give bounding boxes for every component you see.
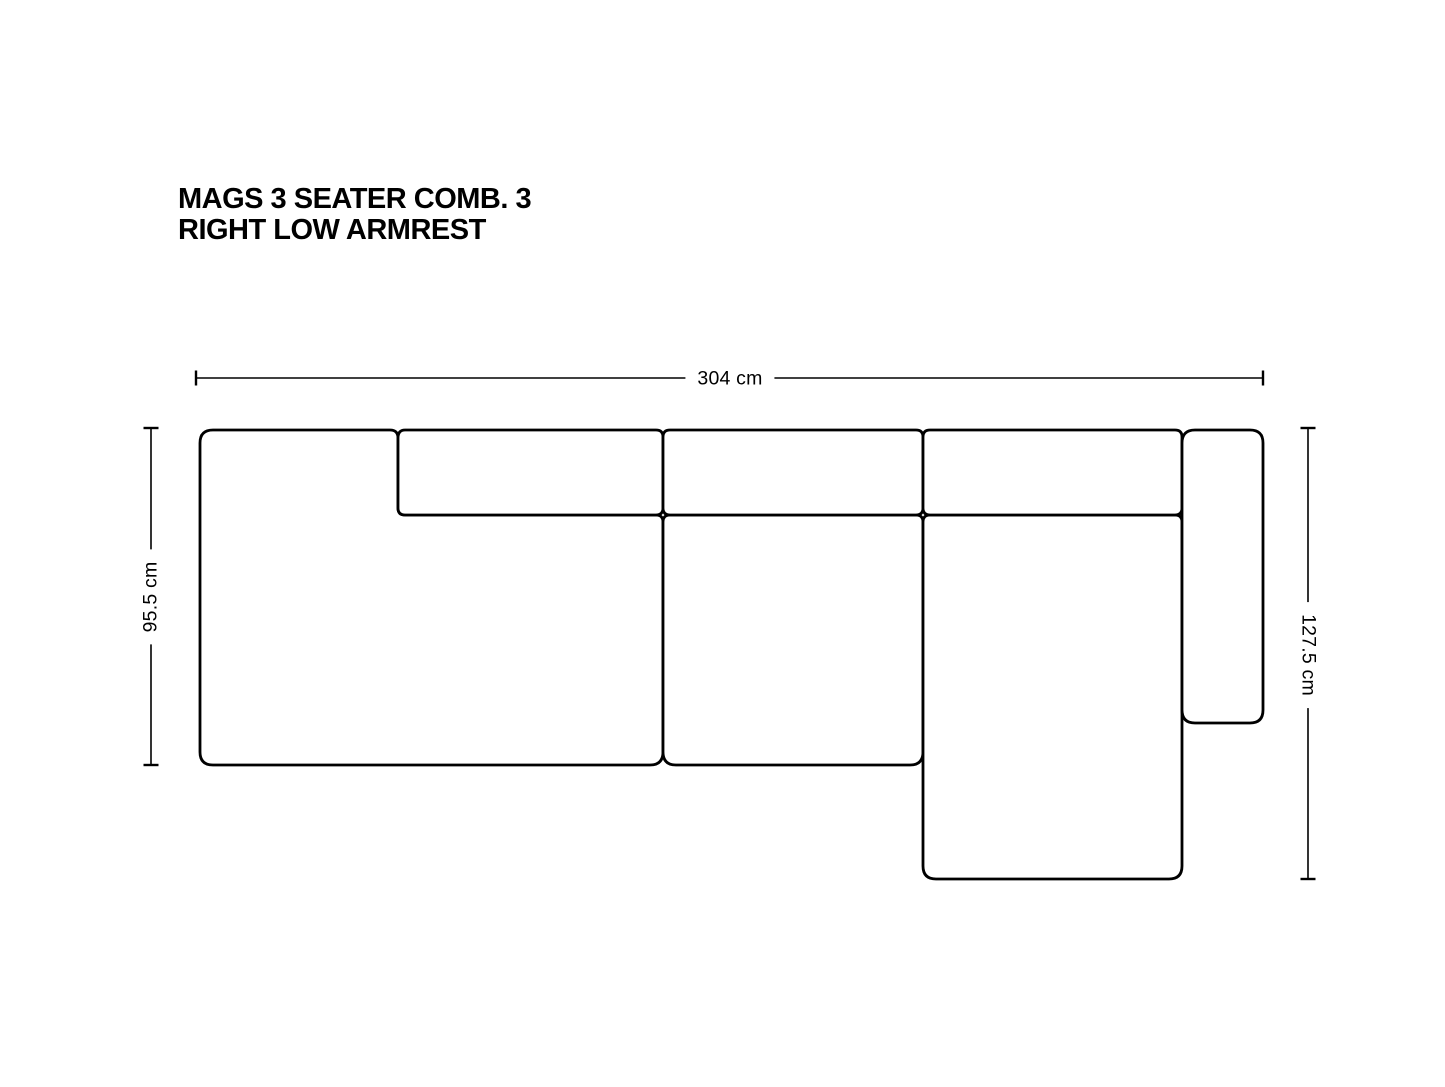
right-low-armrest [1182,430,1263,723]
chaise-backrest-cushion [923,430,1182,515]
middle-seat-module [663,515,923,765]
left-backrest-cushion [398,430,663,515]
chaise-seat-module [923,515,1182,879]
sofa-outline [200,430,1263,879]
right-height-dimension-label: 127.5 cm [1295,602,1322,708]
left-height-dimension-label: 95.5 cm [137,550,164,645]
width-dimension-label: 304 cm [685,366,774,393]
page: MAGS 3 SEATER COMB. 3 RIGHT LOW ARMREST [0,0,1445,1087]
sofa-dimension-diagram [0,0,1445,1087]
middle-backrest-cushion [663,430,923,515]
